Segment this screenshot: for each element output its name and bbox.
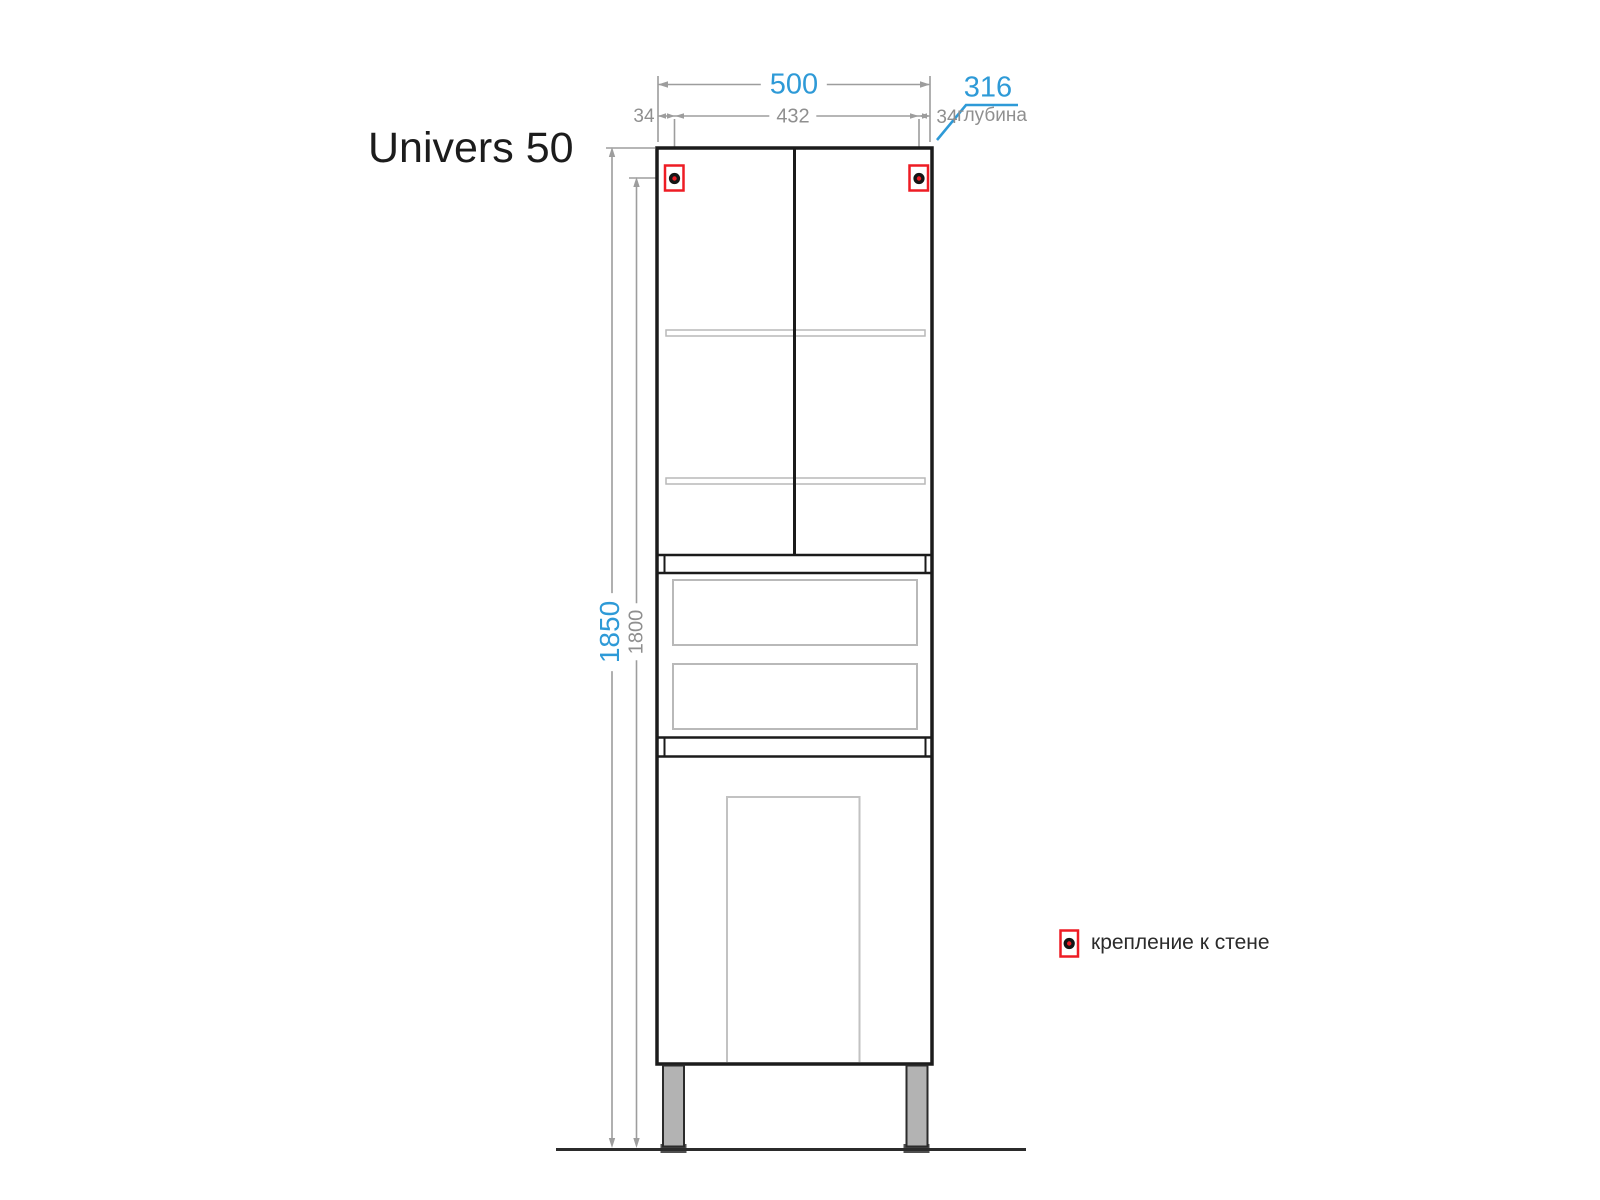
depth-caption: глубина [957,105,1027,127]
dim-label-mount-offset-left: 34 [633,106,654,128]
dim-label-mount-height: 1800 [626,604,649,661]
dim-label-depth: 316 [964,72,1012,105]
dim-label-mount-spacing: 432 [769,106,816,129]
legs-and-floor [556,1066,1026,1154]
mount-dot-left-center [672,176,676,180]
arrowhead [920,81,930,87]
drawer-front-upper [673,580,917,645]
drawer-front-lower [673,664,917,729]
technical-drawing-canvas: Univers 50 500 432 34 34 316 глубина 185… [0,0,1600,1200]
dim-label-overall-height: 1850 [594,593,626,671]
leg-left [663,1066,684,1147]
legend-mount-dot-center [1067,941,1071,945]
leg-right [907,1066,928,1147]
arrowhead [658,81,668,87]
wall-mount-legend-label: крепление к стене [1091,931,1270,955]
arrowhead [667,113,675,119]
arrowhead [910,113,919,119]
cabinet-drawing [0,0,1600,1200]
dim-label-overall-width: 500 [761,69,827,102]
cabinet-body [657,148,932,1064]
mount-dot-right-center [917,176,921,180]
arrowhead [609,1138,615,1148]
dim-label-mount-offset-right: 34 [936,107,957,129]
arrowhead [633,1138,639,1148]
arrowhead [658,113,666,119]
product-title: Univers 50 [368,124,574,173]
arrowhead [675,113,684,119]
